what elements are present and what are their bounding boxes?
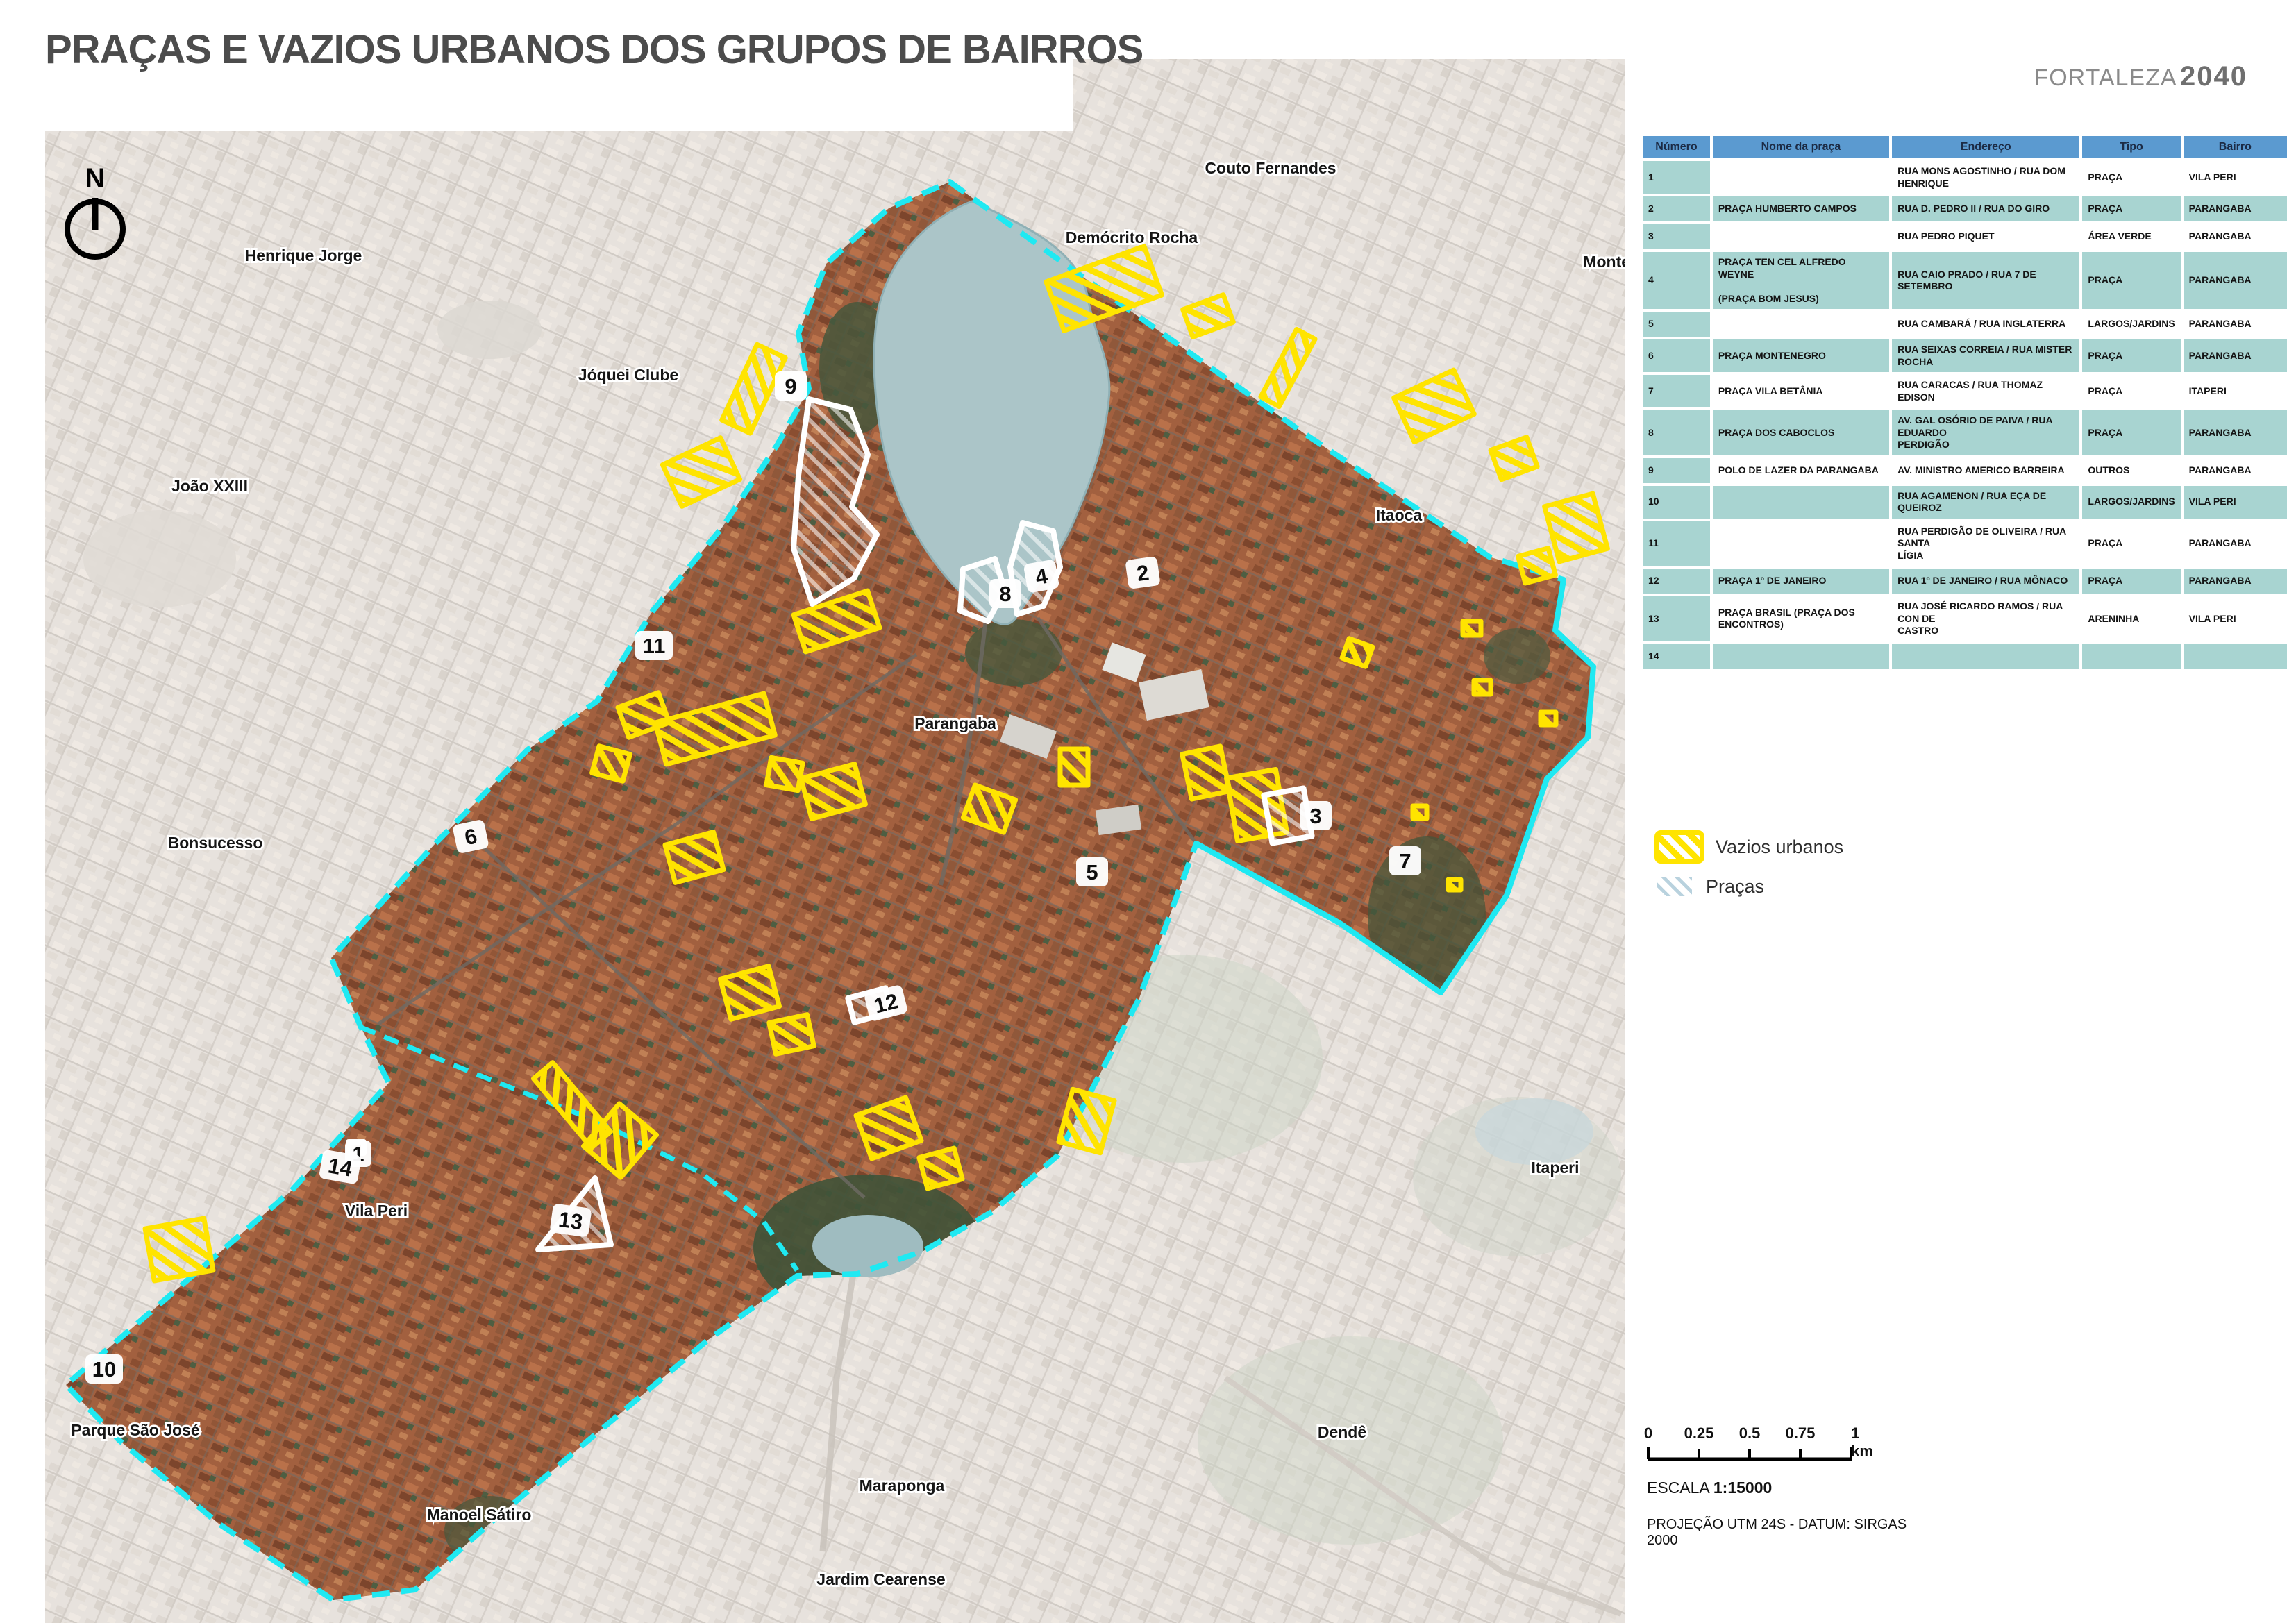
cell-numero: 7 — [1643, 375, 1710, 407]
legend-label: Vazios urbanos — [1716, 836, 1843, 858]
col-header-numero: Número — [1643, 136, 1710, 158]
col-header-tipo: Tipo — [2082, 136, 2180, 158]
cell-numero: 11 — [1643, 521, 1710, 566]
map-label-joquei-clube: Jóquei Clube — [578, 366, 678, 384]
cell-endereco: RUA JOSÉ RICARDO RAMOS / RUA CON DE CAST… — [1892, 596, 2079, 641]
cell-numero: 12 — [1643, 569, 1710, 594]
marker-11: 11 — [635, 631, 673, 660]
marker-13: 13 — [549, 1203, 592, 1237]
scale-bar-icon — [1647, 1445, 1855, 1462]
cell-nome — [1713, 486, 1889, 519]
cell-nome: PRAÇA TEN CEL ALFREDO WEYNE (PRAÇA BOM J… — [1713, 252, 1889, 309]
cell-endereco: AV. GAL OSÓRIO DE PAIVA / RUA EDUARDO PE… — [1892, 410, 2079, 455]
cell-tipo: OUTROS — [2082, 458, 2180, 483]
cell-endereco — [1892, 644, 2079, 669]
table-row: 9POLO DE LAZER DA PARANGABAAV. MINISTRO … — [1643, 458, 2287, 483]
vazio-polygon — [1060, 749, 1088, 785]
map-label-itaperi: Itaperi — [1531, 1159, 1579, 1177]
vazio-polygon — [145, 1218, 213, 1281]
map-label-joao-xxiii: João XXIII — [171, 477, 248, 495]
cell-nome — [1713, 521, 1889, 566]
scale-text: ESCALA 1:15000 — [1647, 1479, 1938, 1497]
marker-10: 10 — [85, 1354, 123, 1384]
vazio-polygon — [592, 746, 630, 782]
map-label-parangaba: Parangaba — [914, 714, 996, 732]
table-row: 2PRAÇA HUMBERTO CAMPOSRUA D. PEDRO II / … — [1643, 196, 2287, 221]
svg-text:7: 7 — [1399, 849, 1411, 873]
vazio-polygon — [1448, 880, 1461, 890]
map-label-democrito-rocha: Demócrito Rocha — [1066, 228, 1198, 246]
cell-endereco: RUA CAIO PRADO / RUA 7 DE SETEMBRO — [1892, 252, 2079, 309]
cell-tipo: PRAÇA — [2082, 569, 2180, 594]
north-label: N — [85, 163, 106, 194]
cell-tipo: LARGOS/JARDINS — [2082, 312, 2180, 337]
cell-bairro: PARANGABA — [2184, 196, 2287, 221]
table-row: 8PRAÇA DOS CABOCLOSAV. GAL OSÓRIO DE PAI… — [1643, 410, 2287, 455]
page-title: PRAÇAS E VAZIOS URBANOS DOS GRUPOS DE BA… — [45, 26, 1330, 73]
cell-nome: PRAÇA HUMBERTO CAMPOS — [1713, 196, 1889, 221]
table-row: 11RUA PERDIGÃO DE OLIVEIRA / RUA SANTA L… — [1643, 521, 2287, 566]
cell-tipo: ÁREA VERDE — [2082, 224, 2180, 249]
col-header-nome: Nome da praça — [1713, 136, 1889, 158]
cell-nome: PRAÇA VILA BETÂNIA — [1713, 375, 1889, 407]
cell-numero: 10 — [1643, 486, 1710, 519]
cell-nome: PRAÇA 1º DE JANEIRO — [1713, 569, 1889, 594]
cell-bairro: VILA PERI — [2184, 486, 2287, 519]
map-label-manoel-satiro: Manoel Sátiro — [427, 1506, 532, 1524]
marker-4: 4 — [1023, 559, 1060, 593]
table-row: 6PRAÇA MONTENEGRORUA SEIXAS CORREIA / RU… — [1643, 339, 2287, 372]
map-label-montese: Montese — [1583, 253, 1625, 271]
cell-bairro: PARANGABA — [2184, 458, 2287, 483]
cell-bairro: PARANGABA — [2184, 569, 2287, 594]
cell-tipo: ARENINHA — [2082, 596, 2180, 641]
map-label-vila-peri: Vila Peri — [345, 1202, 408, 1220]
legend-item-pracas: Praças — [1654, 875, 1843, 898]
scale-label-1km: 1 km — [1851, 1424, 1873, 1461]
scale-tick-labels: 0 0.25 0.5 0.75 1 km — [1647, 1424, 1855, 1445]
vazio-polygon — [1518, 548, 1556, 583]
cell-bairro: PARANGABA — [2184, 339, 2287, 372]
svg-text:8: 8 — [999, 582, 1011, 606]
map-label-itaoca: Itaoca — [1376, 506, 1423, 524]
pracas-swatch-icon — [1657, 877, 1692, 896]
marker-3: 3 — [1300, 801, 1332, 830]
marker-2: 2 — [1125, 556, 1160, 589]
cell-nome — [1713, 644, 1889, 669]
cell-numero: 2 — [1643, 196, 1710, 221]
map-label-bonsucesso: Bonsucesso — [168, 834, 263, 852]
table-row: 3RUA PEDRO PIQUETÁREA VERDEPARANGABA — [1643, 224, 2287, 249]
map-svg: N Couto Fernandes Demócrito Rocha Henriq… — [45, 59, 1625, 1623]
cell-bairro: PARANGABA — [2184, 224, 2287, 249]
map-label-jardim-cearense: Jardim Cearense — [816, 1570, 945, 1588]
cell-numero: 13 — [1643, 596, 1710, 641]
svg-text:14: 14 — [326, 1153, 355, 1181]
cell-endereco: RUA MONS AGOSTINHO / RUA DOM HENRIQUE — [1892, 161, 2079, 194]
cell-endereco: RUA AGAMENON / RUA EÇA DE QUEIROZ — [1892, 486, 2079, 519]
cell-endereco: AV. MINISTRO AMERICO BARREIRA — [1892, 458, 2079, 483]
cell-numero: 1 — [1643, 161, 1710, 194]
cell-nome: PRAÇA DOS CABOCLOS — [1713, 410, 1889, 455]
legend: Vazios urbanos Praças — [1654, 830, 1843, 909]
cell-numero: 4 — [1643, 252, 1710, 309]
vazio-polygon — [919, 1148, 962, 1188]
col-header-bairro: Bairro — [2184, 136, 2287, 158]
svg-text:10: 10 — [92, 1357, 116, 1381]
marker-5: 5 — [1076, 857, 1108, 886]
scale-bar-block: 0 0.25 0.5 0.75 1 km ESCALA 1:15000 PROJ… — [1647, 1424, 1938, 1549]
table-row: 1RUA MONS AGOSTINHO / RUA DOM HENRIQUEPR… — [1643, 161, 2287, 194]
vazios-swatch-icon — [1654, 830, 1704, 864]
projection-text: PROJEÇÃO UTM 24S - DATUM: SIRGAS 2000 — [1647, 1517, 1938, 1549]
lake-maraponga — [812, 1215, 923, 1277]
cell-endereco: RUA PEDRO PIQUET — [1892, 224, 2079, 249]
table-row: 7PRAÇA VILA BETÂNIARUA CARACAS / RUA THO… — [1643, 375, 2287, 407]
cell-numero: 3 — [1643, 224, 1710, 249]
escala-value: 1:15000 — [1713, 1479, 1772, 1497]
map-label-henrique-jorge: Henrique Jorge — [245, 246, 362, 264]
cell-endereco: RUA CARACAS / RUA THOMAZ EDISON — [1892, 375, 2079, 407]
cell-tipo: PRAÇA — [2082, 161, 2180, 194]
cell-bairro: PARANGABA — [2184, 410, 2287, 455]
cell-bairro: VILA PERI — [2184, 596, 2287, 641]
svg-text:5: 5 — [1086, 860, 1098, 884]
vazio-polygon — [766, 757, 803, 790]
cell-bairro — [2184, 644, 2287, 669]
table-row: 14 — [1643, 644, 2287, 669]
brand-year: 2040 — [2180, 61, 2247, 92]
vazio-polygon — [1182, 746, 1230, 799]
col-header-endereco: Endereço — [1892, 136, 2079, 158]
table-row: 12PRAÇA 1º DE JANEIRORUA 1º DE JANEIRO /… — [1643, 569, 2287, 594]
brand: FORTALEZA 2040 — [2034, 61, 2247, 92]
legend-item-vazios: Vazios urbanos — [1654, 830, 1843, 864]
map-label-couto-fernandes: Couto Fernandes — [1205, 159, 1336, 177]
cell-nome — [1713, 161, 1889, 194]
svg-text:11: 11 — [643, 634, 666, 658]
map-label-dende: Dendê — [1318, 1423, 1366, 1441]
cell-bairro: PARANGABA — [2184, 312, 2287, 337]
map-label-maraponga: Maraponga — [860, 1477, 945, 1495]
svg-text:3: 3 — [1309, 804, 1321, 828]
scale-label-025: 0.25 — [1684, 1424, 1714, 1443]
pracas-table-panel: Número Nome da praça Endereço Tipo Bairr… — [1640, 133, 2293, 672]
escala-label: ESCALA — [1647, 1479, 1709, 1497]
cell-nome — [1713, 224, 1889, 249]
table-row: 4PRAÇA TEN CEL ALFREDO WEYNE (PRAÇA BOM … — [1643, 252, 2287, 309]
map-label-parque-sao-jose: Parque São José — [71, 1421, 199, 1439]
vazio-polygon — [1474, 680, 1491, 694]
cell-tipo: PRAÇA — [2082, 339, 2180, 372]
cell-numero: 5 — [1643, 312, 1710, 337]
cell-tipo: PRAÇA — [2082, 410, 2180, 455]
cell-nome: POLO DE LAZER DA PARANGABA — [1713, 458, 1889, 483]
table-header-row: Número Nome da praça Endereço Tipo Bairr… — [1643, 136, 2287, 158]
scale-label-05: 0.5 — [1739, 1424, 1761, 1443]
vazio-polygon — [1541, 712, 1556, 725]
cell-numero: 6 — [1643, 339, 1710, 372]
cell-endereco: RUA 1º DE JANEIRO / RUA MÔNACO — [1892, 569, 2079, 594]
brand-name: FORTALEZA — [2034, 65, 2177, 91]
cell-bairro: PARANGABA — [2184, 521, 2287, 566]
scale-label-075: 0.75 — [1786, 1424, 1816, 1443]
cell-tipo: PRAÇA — [2082, 252, 2180, 309]
vazio-polygon — [1463, 621, 1481, 635]
table-row: 13PRAÇA BRASIL (PRAÇA DOS ENCONTROS)RUA … — [1643, 596, 2287, 641]
cell-endereco: RUA CAMBARÁ / RUA INGLATERRA — [1892, 312, 2079, 337]
cell-bairro: PARANGABA — [2184, 252, 2287, 309]
table-row: 5RUA CAMBARÁ / RUA INGLATERRALARGOS/JARD… — [1643, 312, 2287, 337]
cell-bairro: ITAPERI — [2184, 375, 2287, 407]
table-row: 10RUA AGAMENON / RUA EÇA DE QUEIROZLARGO… — [1643, 486, 2287, 519]
cell-nome — [1713, 312, 1889, 337]
cell-endereco: RUA D. PEDRO II / RUA DO GIRO — [1892, 196, 2079, 221]
scale-label-0: 0 — [1644, 1424, 1652, 1443]
cell-endereco: RUA PERDIGÃO DE OLIVEIRA / RUA SANTA LÍG… — [1892, 521, 2079, 566]
cell-numero: 9 — [1643, 458, 1710, 483]
map-canvas: N Couto Fernandes Demócrito Rocha Henriq… — [45, 59, 1625, 1623]
marker-8: 8 — [989, 579, 1021, 608]
cell-bairro: VILA PERI — [2184, 161, 2287, 194]
vazio-polygon — [1413, 806, 1427, 818]
cell-tipo: PRAÇA — [2082, 521, 2180, 566]
cell-nome: PRAÇA BRASIL (PRAÇA DOS ENCONTROS) — [1713, 596, 1889, 641]
svg-text:9: 9 — [785, 374, 796, 398]
cell-tipo: PRAÇA — [2082, 196, 2180, 221]
svg-text:13: 13 — [557, 1207, 584, 1234]
legend-label: Praças — [1706, 876, 1764, 898]
cell-tipo: PRAÇA — [2082, 375, 2180, 407]
cell-numero: 8 — [1643, 410, 1710, 455]
cell-tipo — [2082, 644, 2180, 669]
cell-tipo: LARGOS/JARDINS — [2082, 486, 2180, 519]
vazio-polygon — [769, 1015, 814, 1054]
map-sheet: { "header": { "title": "PRAÇAS E VAZIOS … — [0, 0, 2296, 1623]
pracas-table: Número Nome da praça Endereço Tipo Bairr… — [1640, 133, 2290, 672]
marker-9: 9 — [775, 371, 807, 401]
marker-7: 7 — [1389, 846, 1421, 875]
cell-numero: 14 — [1643, 644, 1710, 669]
cell-nome: PRAÇA MONTENEGRO — [1713, 339, 1889, 372]
cell-endereco: RUA SEIXAS CORREIA / RUA MISTER ROCHA — [1892, 339, 2079, 372]
